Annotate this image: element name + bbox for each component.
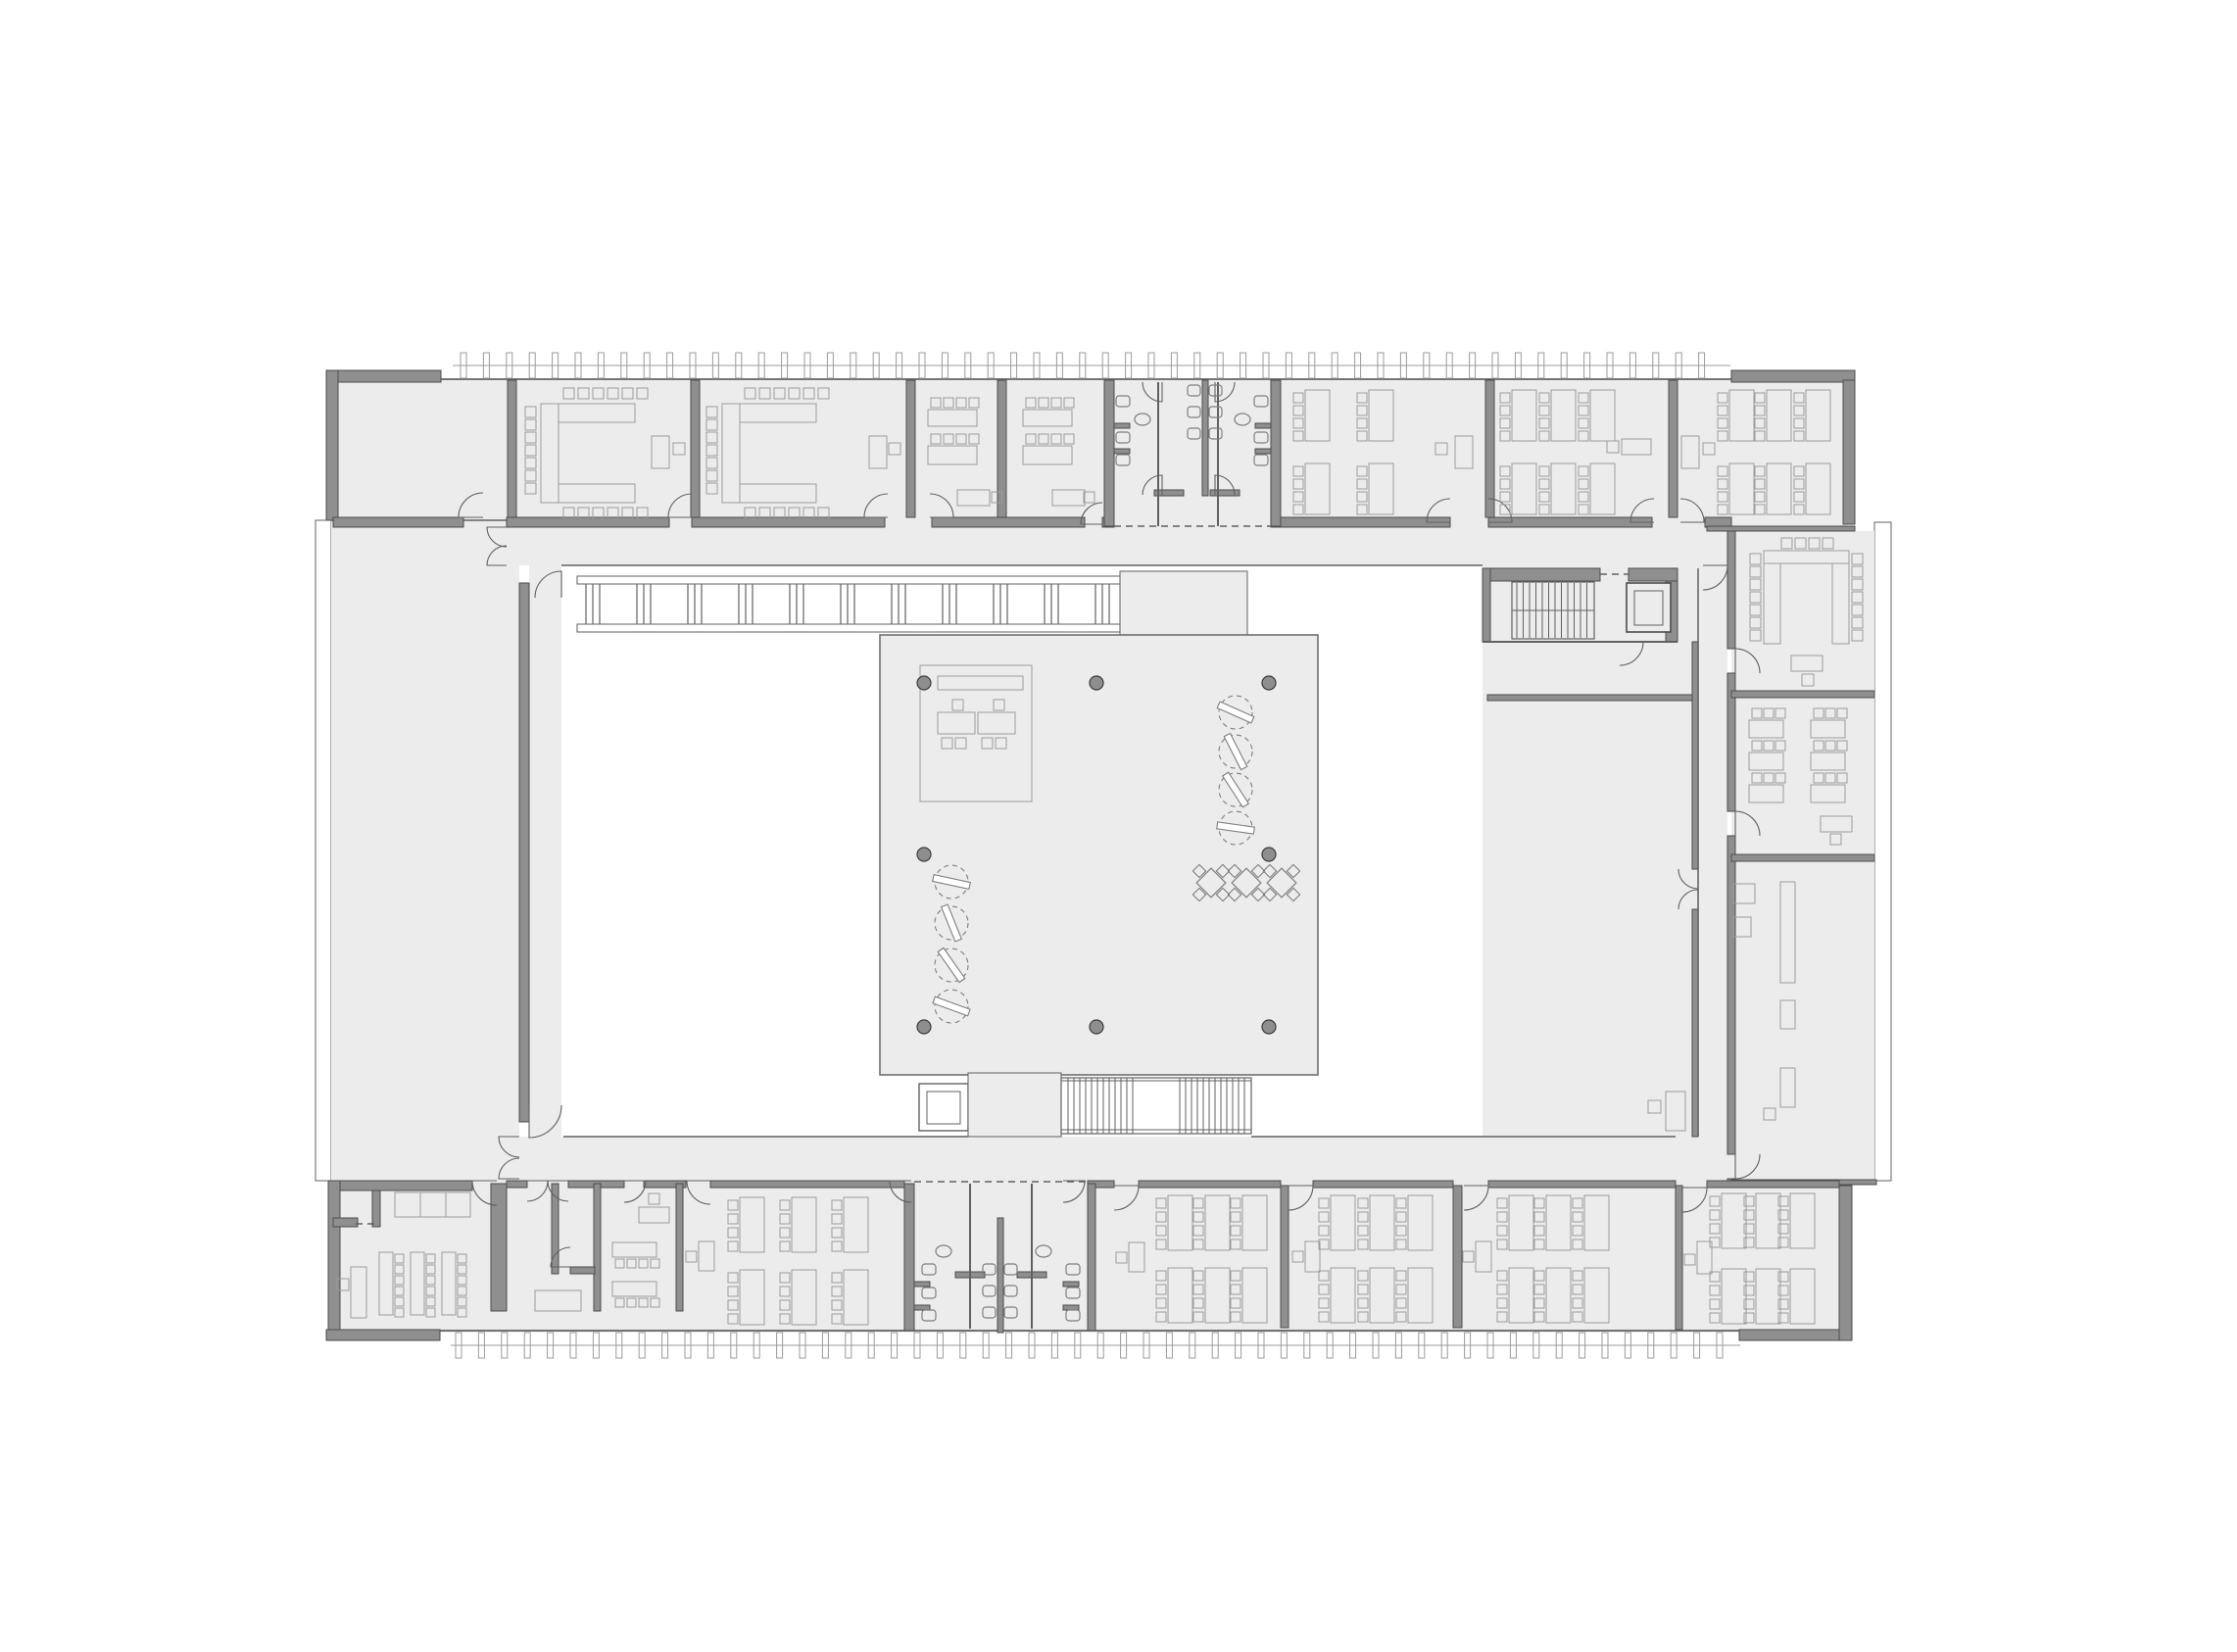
south-corridor-floor	[519, 1137, 1741, 1181]
wall	[1104, 380, 1114, 526]
wc-stall-wall	[1063, 1305, 1079, 1310]
east-facade-line	[1874, 522, 1891, 1181]
wall	[1692, 642, 1698, 869]
wall	[1676, 1186, 1682, 1330]
wall	[1139, 1181, 1281, 1188]
wall	[326, 370, 338, 520]
wall	[932, 517, 1085, 527]
west-facade-line	[316, 520, 331, 1181]
wall	[508, 380, 516, 517]
wall	[326, 1330, 440, 1340]
wall	[1731, 370, 1855, 382]
column	[1090, 1020, 1103, 1034]
wall	[1453, 1186, 1462, 1328]
wall	[691, 380, 700, 517]
wall	[333, 517, 463, 527]
wall	[1739, 1330, 1851, 1340]
wall	[1669, 380, 1678, 517]
column	[917, 676, 931, 690]
wall	[1839, 1186, 1852, 1340]
stage-landing	[968, 1073, 1061, 1137]
wall	[326, 370, 441, 382]
wall	[906, 380, 915, 517]
wc-spine-wall	[1202, 380, 1208, 496]
west-link-corridor	[529, 565, 561, 1137]
wall	[676, 1184, 683, 1311]
wc-stall-wall	[1255, 423, 1271, 428]
wall	[1281, 1186, 1289, 1328]
wall	[1727, 531, 1735, 649]
hall-stair	[1061, 1078, 1251, 1134]
column	[1262, 676, 1276, 690]
wall	[1313, 1181, 1453, 1188]
column	[917, 1020, 931, 1034]
wc-spine-wall	[997, 1218, 1003, 1333]
north-wing-floor	[336, 380, 1848, 565]
wall	[1487, 695, 1692, 701]
wall	[1843, 380, 1855, 524]
wall	[1088, 1184, 1095, 1331]
wc-stall-wall	[1063, 1282, 1079, 1287]
bridge-landing	[1120, 571, 1247, 635]
wall	[328, 1181, 340, 1339]
wall	[1707, 1181, 1839, 1188]
column	[917, 848, 931, 861]
floor-plan-canvas	[0, 0, 2237, 1652]
wall	[1483, 568, 1600, 581]
wall	[1707, 526, 1855, 531]
wall	[333, 1218, 358, 1227]
wall	[1731, 691, 1874, 698]
west-hall-room	[331, 520, 519, 1181]
wall	[507, 1181, 527, 1188]
wall	[519, 583, 529, 1122]
east-core-floor	[1483, 565, 1727, 1137]
wall	[1692, 909, 1698, 1137]
gallery-shelf-rail	[577, 624, 1120, 632]
wall	[1271, 517, 1450, 527]
floor-plan: Architectural floor plan drawing	[0, 0, 2237, 1652]
column	[1262, 848, 1276, 861]
wall	[570, 1267, 595, 1274]
wc-stall-wall	[1255, 449, 1271, 454]
wc-stall-wall	[1114, 449, 1130, 454]
gallery-shelf-rail	[577, 576, 1120, 584]
wall	[904, 1184, 914, 1331]
column	[1090, 676, 1103, 690]
wall	[710, 1181, 904, 1188]
wall	[1271, 380, 1281, 526]
wall	[1488, 1181, 1676, 1188]
wall	[372, 1190, 380, 1227]
wc-stall-wall	[1114, 423, 1130, 428]
central-platform	[880, 635, 1318, 1075]
wall	[1629, 568, 1678, 581]
wall	[594, 1184, 601, 1311]
wall	[1485, 380, 1494, 517]
column	[1262, 1020, 1276, 1034]
wc-stall-wall	[914, 1305, 930, 1310]
wc-stall-wall	[914, 1282, 930, 1287]
wall	[491, 1184, 507, 1311]
wall	[1488, 517, 1652, 527]
wall	[328, 1181, 472, 1190]
wall	[1483, 568, 1490, 642]
wall	[1731, 854, 1874, 861]
